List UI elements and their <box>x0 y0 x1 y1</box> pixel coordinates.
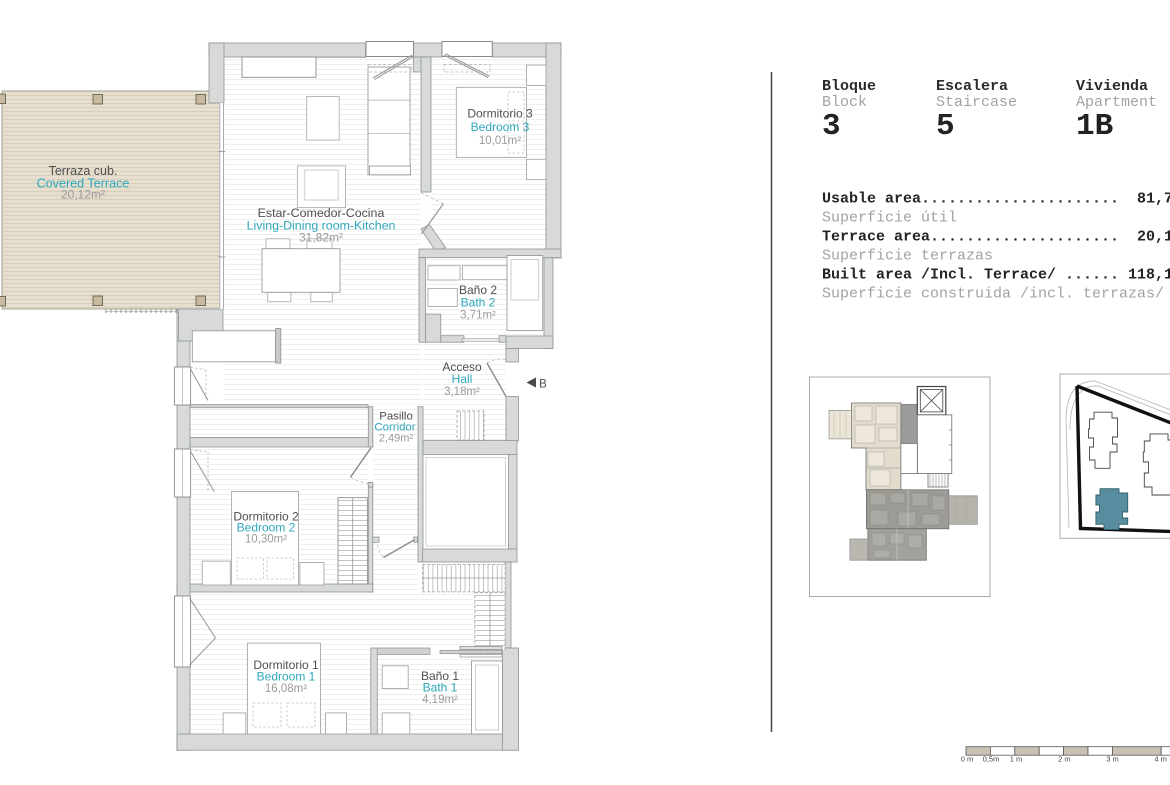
svg-text:Superficie útil: Superficie útil <box>822 210 957 227</box>
svg-text:Bath 2: Bath 2 <box>461 296 496 310</box>
svg-text:0,5m: 0,5m <box>983 755 1000 764</box>
svg-text:16,08m²: 16,08m² <box>265 683 307 695</box>
svg-text:Vivienda: Vivienda <box>1076 78 1148 95</box>
svg-text:Bedroom 1: Bedroom 1 <box>257 670 316 684</box>
svg-text:3,71m²: 3,71m² <box>460 310 496 322</box>
svg-text:Superficie terrazas: Superficie terrazas <box>822 248 993 265</box>
svg-text:Usable area...................: Usable area...................... 81,70 … <box>822 191 1170 208</box>
svg-text:4 m: 4 m <box>1154 755 1167 764</box>
svg-text:1B: 1B <box>1076 109 1113 144</box>
svg-text:3 m: 3 m <box>1106 755 1119 764</box>
svg-text:Bath 1: Bath 1 <box>423 681 458 695</box>
svg-text:B: B <box>539 379 547 391</box>
svg-text:5: 5 <box>936 109 955 144</box>
svg-text:Terrace area..................: Terrace area..................... 20,12 … <box>822 229 1170 246</box>
svg-text:1 m: 1 m <box>1010 755 1023 764</box>
svg-text:0 m: 0 m <box>961 755 974 764</box>
svg-text:10,01m²: 10,01m² <box>479 135 521 147</box>
svg-text:Dormitorio 3: Dormitorio 3 <box>467 107 533 121</box>
svg-text:3,18m²: 3,18m² <box>444 386 480 398</box>
svg-text:31,82m²: 31,82m² <box>299 231 343 245</box>
svg-text:4,19m²: 4,19m² <box>422 694 458 706</box>
svg-text:Bedroom 3: Bedroom 3 <box>471 120 530 134</box>
svg-text:20,12m²: 20,12m² <box>61 188 105 202</box>
svg-text:Hall: Hall <box>452 372 473 386</box>
svg-text:3: 3 <box>822 109 841 144</box>
svg-text:Bedroom 2: Bedroom 2 <box>237 521 296 535</box>
svg-text:Built area /Incl. Terrace/ ...: Built area /Incl. Terrace/ ...... 118,18… <box>822 267 1170 284</box>
svg-text:2 m: 2 m <box>1058 755 1071 764</box>
svg-text:2,49m²: 2,49m² <box>379 433 414 445</box>
svg-text:Escalera: Escalera <box>936 78 1008 95</box>
svg-text:Superficie construida /incl. t: Superficie construida /incl. terrazas/ <box>822 286 1164 303</box>
svg-text:10,30m²: 10,30m² <box>245 534 287 546</box>
svg-text:Bloque: Bloque <box>822 78 876 95</box>
